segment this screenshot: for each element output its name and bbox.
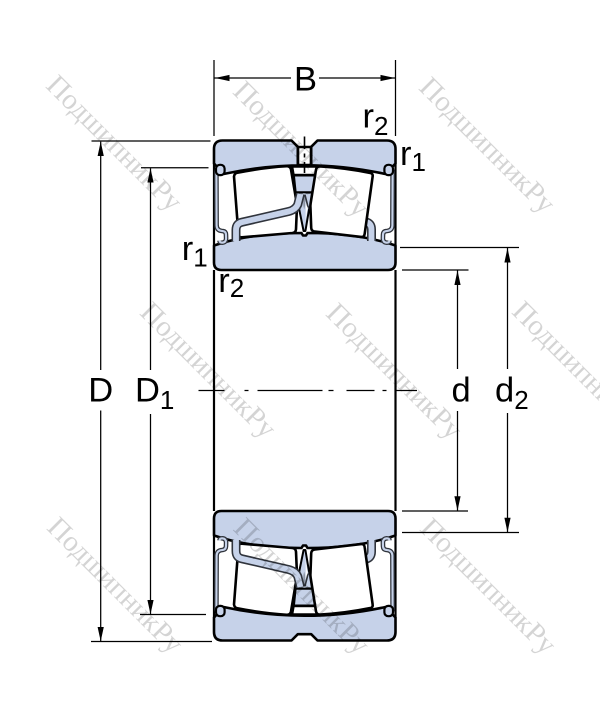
svg-text:B: B xyxy=(294,61,317,99)
svg-text:d: d xyxy=(452,372,471,410)
svg-text:D: D xyxy=(88,372,113,410)
